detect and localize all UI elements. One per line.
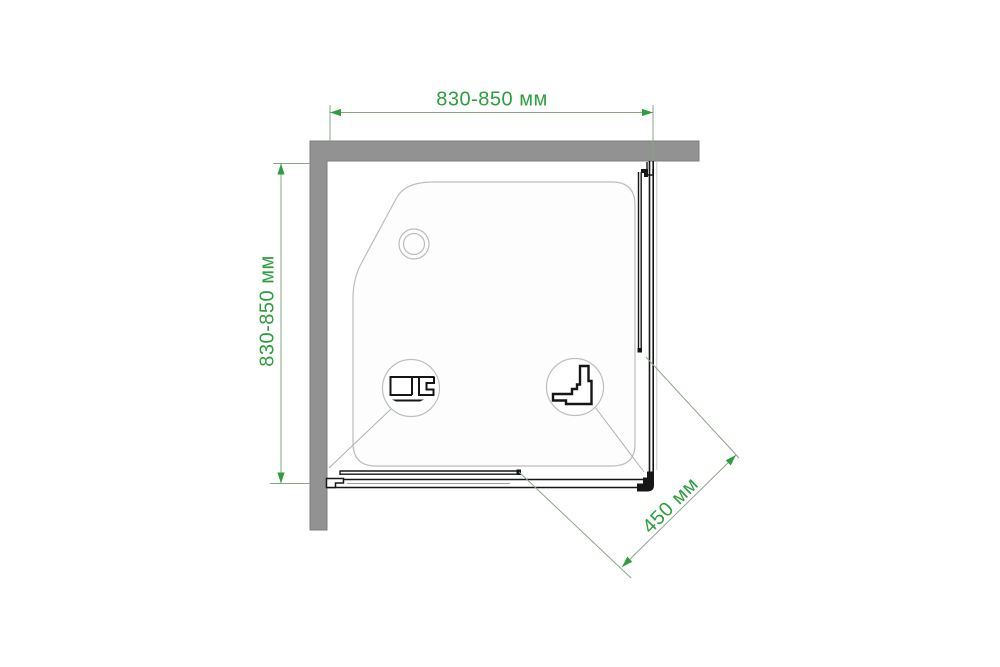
dimension-label-width: 830-850 мм	[436, 89, 547, 112]
right-door-end-cap	[638, 348, 643, 353]
bottom-rail-left-bracket	[327, 479, 344, 488]
arrow-down-icon	[277, 473, 284, 484]
bottom-door-end-cap	[517, 470, 522, 476]
arrow-left-icon	[330, 109, 341, 116]
bottom-rail	[327, 479, 650, 488]
drawing-canvas: 830-850 мм 830-850 мм 450 мм	[0, 0, 1000, 667]
arrow-right-icon	[642, 109, 653, 116]
tray-outline	[353, 182, 635, 466]
dimension-label-depth: 830-850 мм	[257, 255, 280, 366]
bottom-door-panel	[340, 470, 521, 476]
corner-bracket	[637, 472, 654, 492]
shower-tray	[353, 182, 635, 466]
right-door-top-guide	[641, 169, 648, 177]
arrow-up-icon	[277, 164, 284, 175]
right-door-panel	[638, 169, 649, 353]
right-rail	[647, 161, 657, 472]
